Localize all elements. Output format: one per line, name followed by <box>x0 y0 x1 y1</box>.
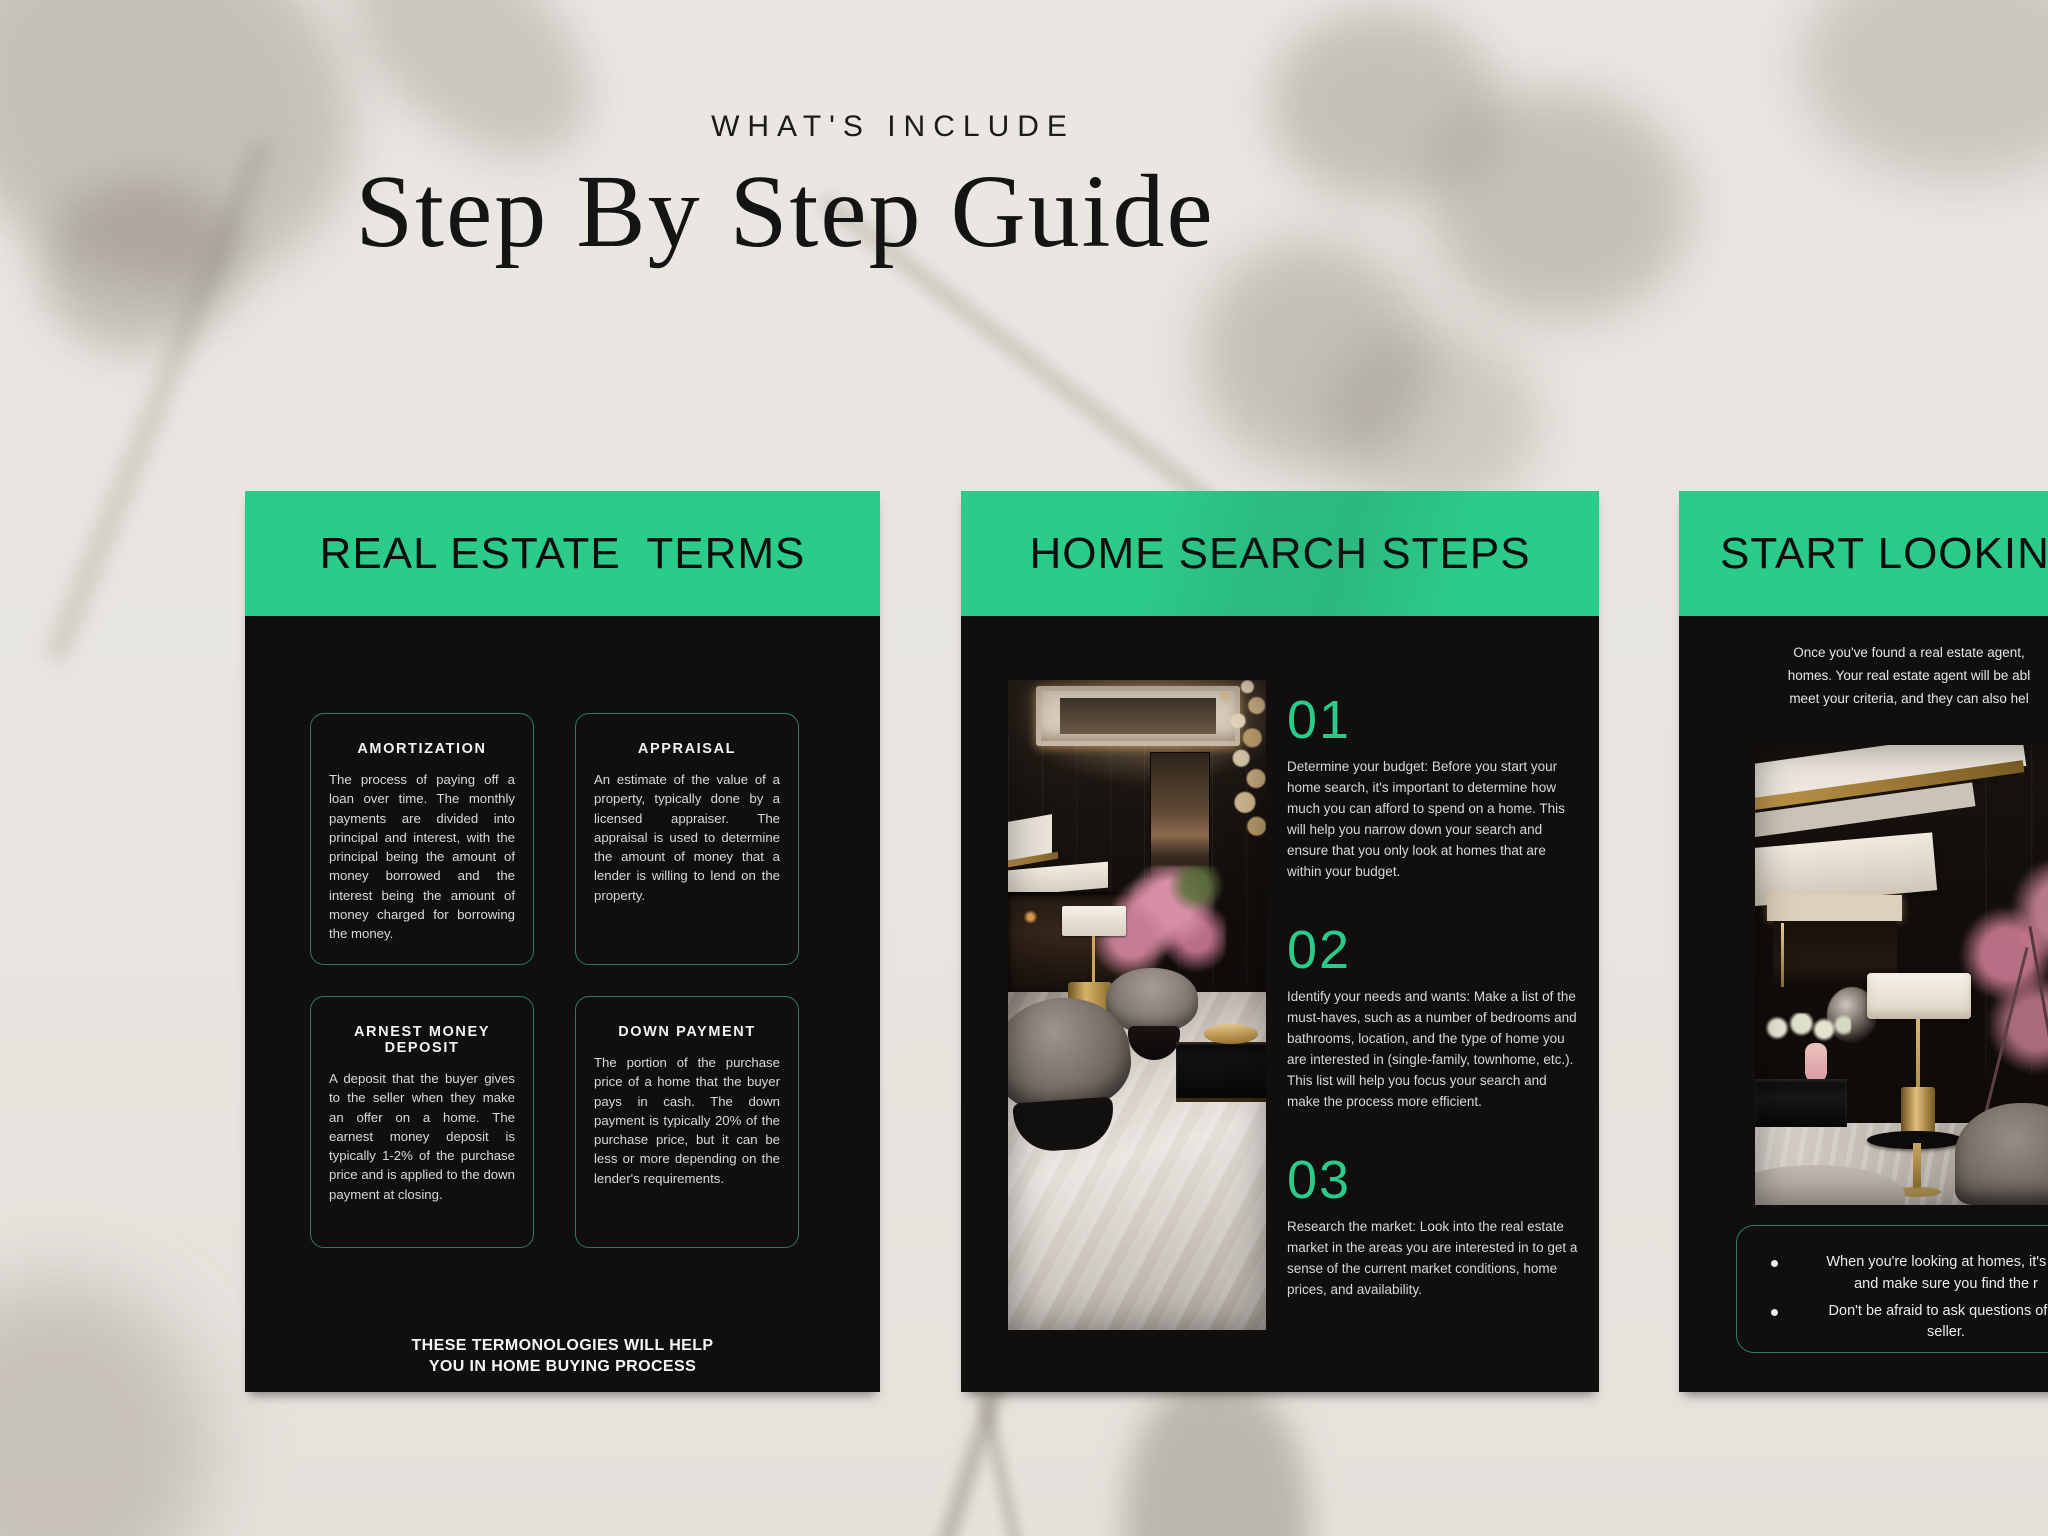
plant-shadow-stem <box>865 1368 1008 1536</box>
step-text: Identify your needs and wants: Make a li… <box>1287 986 1583 1112</box>
term-box-amortization: AMORTIZATION The process of paying off a… <box>310 713 534 965</box>
plant-shadow <box>21 157 258 373</box>
tips-box: When you're looking at homes, it's im an… <box>1736 1225 2048 1353</box>
interior-photo-lounge <box>1755 745 2048 1205</box>
bullet-dot <box>1771 1260 1778 1267</box>
photo-vignette <box>1755 745 2048 1205</box>
tip-text: When you're looking at homes, it's im an… <box>1796 1252 2048 1296</box>
card3-intro: Once you've found a real estate agent, h… <box>1679 641 2048 711</box>
card2-header-bar: HOME SEARCH STEPS <box>961 491 1599 616</box>
page-title: Step By Step Guide <box>225 152 1345 271</box>
photo-vignette <box>1008 680 1266 1330</box>
step-02: 02 Identify your needs and wants: Make a… <box>1287 923 1583 1112</box>
term-definition: A deposit that the buyer gives to the se… <box>311 1069 533 1204</box>
term-box-down-payment: DOWN PAYMENT The portion of the purchase… <box>575 996 799 1248</box>
card-home-search-steps: HOME SEARCH STEPS <box>961 491 1599 1392</box>
card1-header-bar: REAL ESTATE TERMS <box>245 491 880 616</box>
plant-shadow <box>1099 1368 1332 1536</box>
page-canvas: WHAT'S INCLUDE Step By Step Guide REAL E… <box>0 0 2048 1536</box>
plant-shadow <box>1800 0 2048 180</box>
plant-shadow <box>1430 90 1690 320</box>
step-number: 01 <box>1287 693 1583 747</box>
term-box-appraisal: APPRAISAL An estimate of the value of a … <box>575 713 799 965</box>
step-01: 01 Determine your budget: Before you sta… <box>1287 693 1583 882</box>
step-number: 02 <box>1287 923 1583 977</box>
plant-shadow <box>0 1280 210 1536</box>
plant-shadow <box>1200 240 1430 470</box>
plant-shadow-stem <box>979 1392 1051 1536</box>
shadow-wash <box>961 491 1599 616</box>
card1-title: REAL ESTATE TERMS <box>320 529 806 579</box>
step-text: Determine your budget: Before you start … <box>1287 756 1583 882</box>
card-start-looking: START LOOKING Once you've found a real e… <box>1679 491 2048 1392</box>
term-title: APPRAISAL <box>580 741 794 757</box>
step-text: Research the market: Look into the real … <box>1287 1216 1583 1300</box>
interior-photo-living-room <box>1008 680 1266 1330</box>
step-03: 03 Research the market: Look into the re… <box>1287 1153 1583 1300</box>
card3-title: START LOOKING <box>1720 529 2048 579</box>
term-definition: The portion of the purchase price of a h… <box>576 1053 798 1188</box>
tip-text: Don't be afraid to ask questions of th s… <box>1796 1301 2048 1345</box>
term-definition: The process of paying off a loan over ti… <box>311 770 533 943</box>
tip-item: Don't be afraid to ask questions of th s… <box>1771 1301 2048 1345</box>
term-title: ARNEST MONEY DEPOSIT <box>315 1024 529 1056</box>
step-number: 03 <box>1287 1153 1583 1207</box>
bullet-dot <box>1771 1309 1778 1316</box>
term-title: AMORTIZATION <box>315 741 529 757</box>
steps-list: 01 Determine your budget: Before you sta… <box>1287 687 1583 1377</box>
eyebrow-text: WHAT'S INCLUDE <box>593 110 1193 144</box>
term-box-earnest-money-deposit: ARNEST MONEY DEPOSIT A deposit that the … <box>310 996 534 1248</box>
card1-footer-note: THESE TERMONOLOGIES WILL HELP YOU IN HOM… <box>245 1336 880 1378</box>
card3-header-bar: START LOOKING <box>1679 491 2048 616</box>
plant-shadow <box>1330 330 1540 510</box>
tip-item: When you're looking at homes, it's im an… <box>1771 1252 2048 1296</box>
term-title: DOWN PAYMENT <box>580 1024 794 1040</box>
card-real-estate-terms: REAL ESTATE TERMS AMORTIZATION The proce… <box>245 491 880 1392</box>
term-definition: An estimate of the value of a property, … <box>576 770 798 905</box>
